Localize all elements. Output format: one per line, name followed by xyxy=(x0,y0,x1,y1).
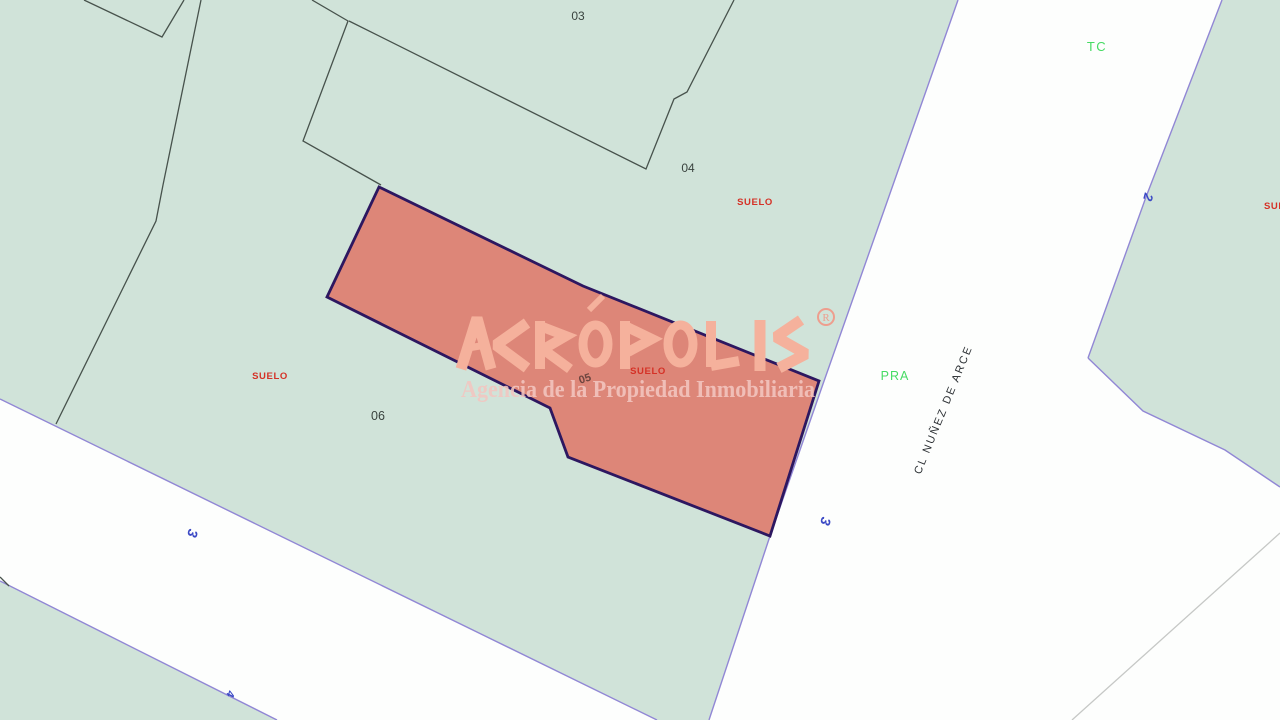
svg-text:SUELO: SUELO xyxy=(630,366,666,377)
svg-text:R: R xyxy=(822,312,830,324)
svg-text:TC: TC xyxy=(1087,39,1107,54)
svg-text:PRA: PRA xyxy=(881,369,910,383)
svg-text:03: 03 xyxy=(571,9,585,23)
svg-text:Agencia de la Propiedad Inmobi: Agencia de la Propiedad Inmobiliaria xyxy=(461,377,815,403)
svg-text:SUELO: SUELO xyxy=(252,371,288,382)
svg-text:06: 06 xyxy=(371,409,385,423)
svg-text:SUELO: SUELO xyxy=(737,197,773,208)
svg-text:SUELO: SUELO xyxy=(1264,201,1280,212)
svg-text:04: 04 xyxy=(681,161,695,175)
